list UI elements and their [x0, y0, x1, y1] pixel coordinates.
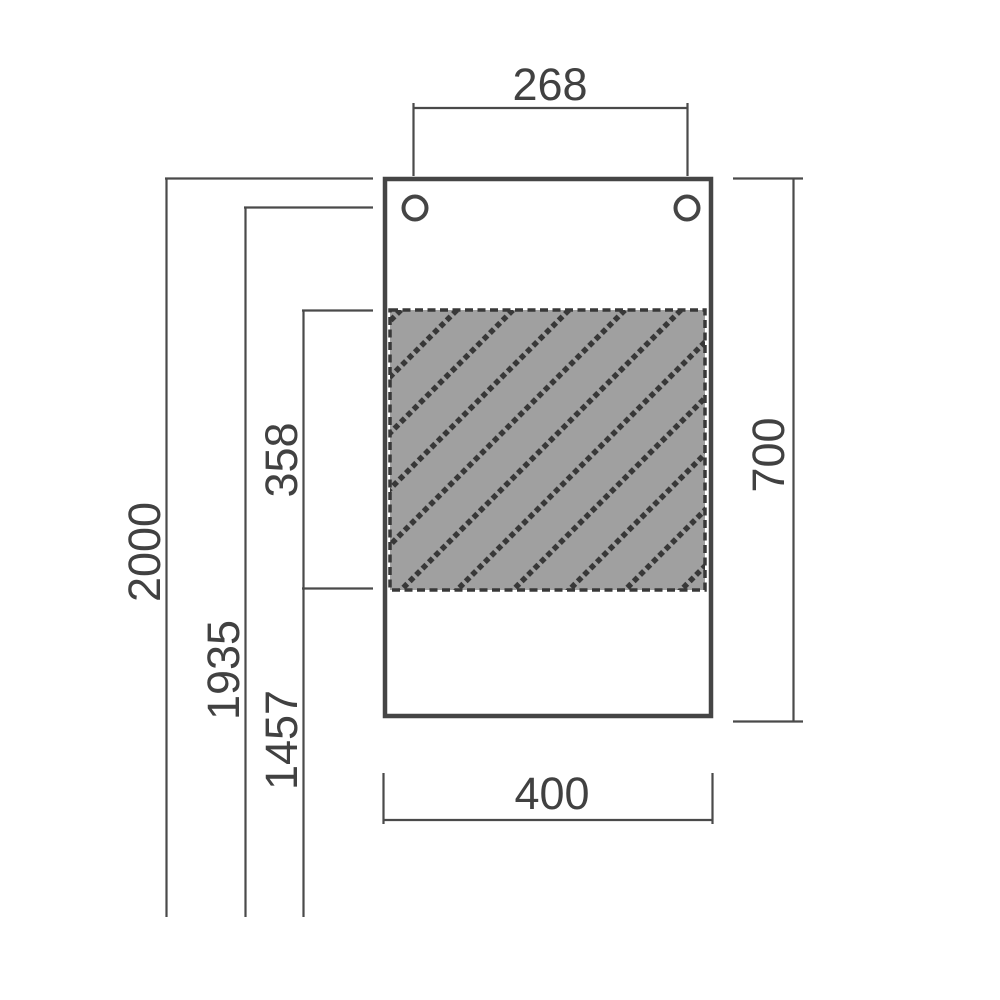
dim-label-panel-width: 400	[514, 768, 589, 819]
dim-label-hole-spacing: 268	[512, 59, 587, 110]
dim-label-below-hatch-height: 1457	[256, 690, 307, 790]
dim-label-overall-height: 2000	[119, 502, 170, 602]
hatch-diagonal-line	[677, 306, 965, 594]
mounting-hole-right	[676, 197, 699, 220]
dim-panel-height: 700	[733, 178, 803, 722]
dim-hole-spacing: 268	[413, 59, 688, 176]
dim-hatch-and-lower: 358 1457	[256, 310, 373, 917]
dim-label-panel-height: 700	[743, 417, 794, 492]
dim-label-hole-center-height: 1935	[198, 620, 249, 720]
dim-hole-center-height: 1935	[198, 207, 373, 917]
dim-label-hatch-height: 358	[256, 422, 307, 497]
hatched-area	[117, 306, 965, 594]
mounting-hole-left	[404, 197, 427, 220]
dim-panel-width: 400	[383, 768, 713, 824]
technical-drawing: 268 2000 1935 358 1457 700 400	[0, 0, 1000, 1000]
hatched-area-outline	[390, 310, 705, 590]
